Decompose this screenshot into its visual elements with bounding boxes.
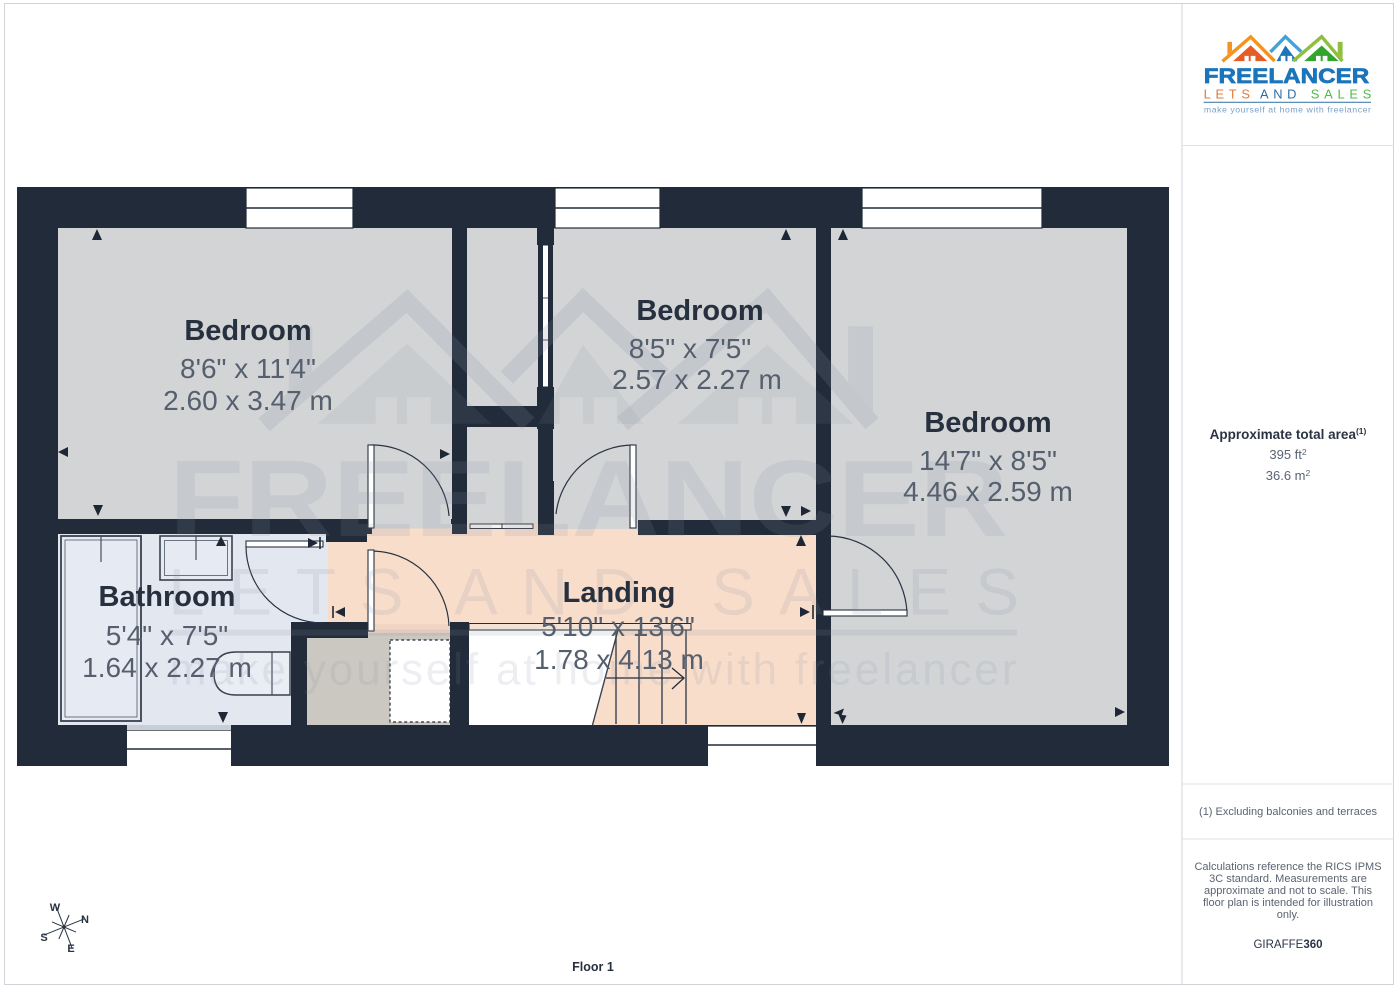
- svg-text:2.57 x 2.27 m: 2.57 x 2.27 m: [612, 364, 782, 395]
- svg-text:Landing: Landing: [563, 577, 676, 609]
- svg-text:Floor 1: Floor 1: [572, 960, 614, 974]
- svg-text:AND: AND: [1260, 87, 1296, 102]
- svg-text:(1) Excluding balconies and te: (1) Excluding balconies and terraces: [1199, 806, 1377, 818]
- svg-text:1.64 x 2.27 m: 1.64 x 2.27 m: [82, 652, 252, 683]
- svg-text:FREELANCER: FREELANCER: [169, 438, 1008, 559]
- svg-text:36.6 m2: 36.6 m2: [1266, 468, 1311, 483]
- svg-text:Bedroom: Bedroom: [924, 407, 1051, 439]
- svg-text:Approximate total area(1): Approximate total area(1): [1210, 426, 1367, 442]
- svg-text:5'4" x 7'5": 5'4" x 7'5": [106, 620, 228, 651]
- svg-text:395 ft2: 395 ft2: [1269, 447, 1307, 462]
- svg-text:floor plan is intended for ill: floor plan is intended for illustration: [1203, 897, 1373, 909]
- svg-text:Bedroom: Bedroom: [184, 315, 311, 347]
- svg-text:FREELANCER: FREELANCER: [1204, 64, 1370, 88]
- svg-text:approximate and not to scale.: approximate and not to scale. This: [1204, 885, 1372, 897]
- svg-text:2.60 x 3.47 m: 2.60 x 3.47 m: [163, 385, 333, 416]
- svg-text:1.78 x 4.13 m: 1.78 x 4.13 m: [534, 644, 704, 675]
- svg-text:8'5" x 7'5": 8'5" x 7'5": [629, 333, 751, 364]
- svg-text:8'6" x 11'4": 8'6" x 11'4": [180, 353, 316, 384]
- svg-text:make yourself at home with fre: make yourself at home with freelancer: [1204, 105, 1371, 115]
- svg-text:N: N: [81, 914, 89, 926]
- svg-text:W: W: [50, 902, 61, 914]
- svg-text:4.46 x 2.59 m: 4.46 x 2.59 m: [903, 476, 1073, 507]
- svg-text:E: E: [67, 943, 74, 955]
- svg-text:GIRAFFE360: GIRAFFE360: [1253, 939, 1322, 951]
- svg-text:S: S: [40, 932, 47, 944]
- svg-text:5'10" x 13'6": 5'10" x 13'6": [541, 611, 695, 642]
- svg-text:only.: only.: [1277, 909, 1299, 921]
- svg-text:14'7" x 8'5": 14'7" x 8'5": [919, 445, 1057, 476]
- svg-text:3C standard. Measurements are: 3C standard. Measurements are: [1209, 873, 1367, 885]
- svg-text:Calculations reference the RIC: Calculations reference the RICS IPMS: [1194, 861, 1381, 873]
- svg-text:Bathroom: Bathroom: [99, 581, 236, 613]
- svg-text:Bedroom: Bedroom: [636, 295, 763, 327]
